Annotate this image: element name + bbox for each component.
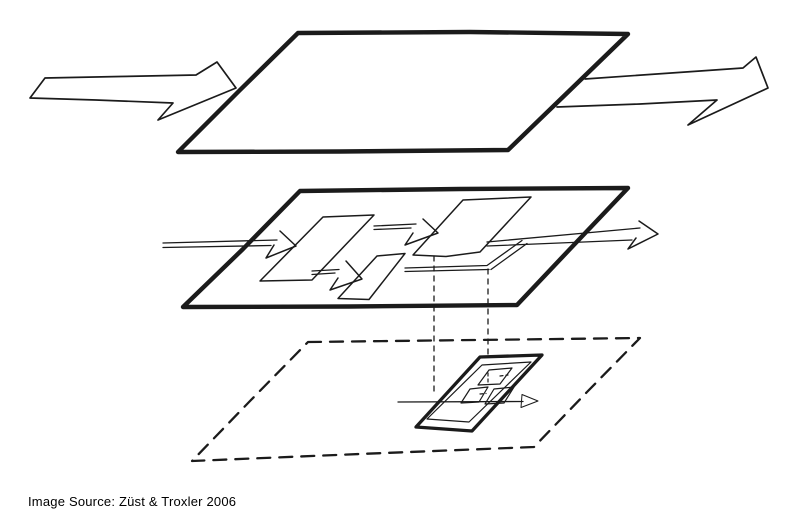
exploded-layers-diagram — [0, 0, 785, 521]
middle-plane — [163, 188, 658, 307]
detail-through-arrowhead — [521, 395, 538, 408]
flow-in-line — [163, 240, 277, 248]
flow-in-arrowhead — [266, 231, 296, 258]
input-block-arrow — [30, 62, 236, 120]
output-block-arrow — [557, 57, 768, 125]
middle-plane-outline — [183, 188, 628, 307]
detail-mini-subprocess-1 — [478, 368, 512, 385]
detail-mini-subprocess-2 — [461, 387, 488, 403]
flow-1-to-3-line — [374, 224, 416, 230]
flow-out-arrowhead — [628, 221, 658, 249]
projection-lines — [434, 256, 488, 396]
flow-1-to-2-line — [312, 270, 339, 275]
flow-1-to-2-arrowhead — [330, 261, 362, 290]
sketch-canvas: Image Source: Züst & Troxler 2006 — [0, 0, 785, 521]
detail-through-arrow-line — [398, 402, 523, 403]
top-plane-outline — [178, 32, 628, 152]
bottom-plane-outline — [192, 338, 640, 461]
bottom-plane — [192, 338, 640, 461]
image-source-caption: Image Source: Züst & Troxler 2006 — [28, 494, 236, 510]
subprocess-2 — [338, 254, 405, 300]
detail-box-inner-border — [427, 362, 531, 422]
flow-out-line — [487, 228, 640, 246]
top-plane — [30, 32, 768, 152]
